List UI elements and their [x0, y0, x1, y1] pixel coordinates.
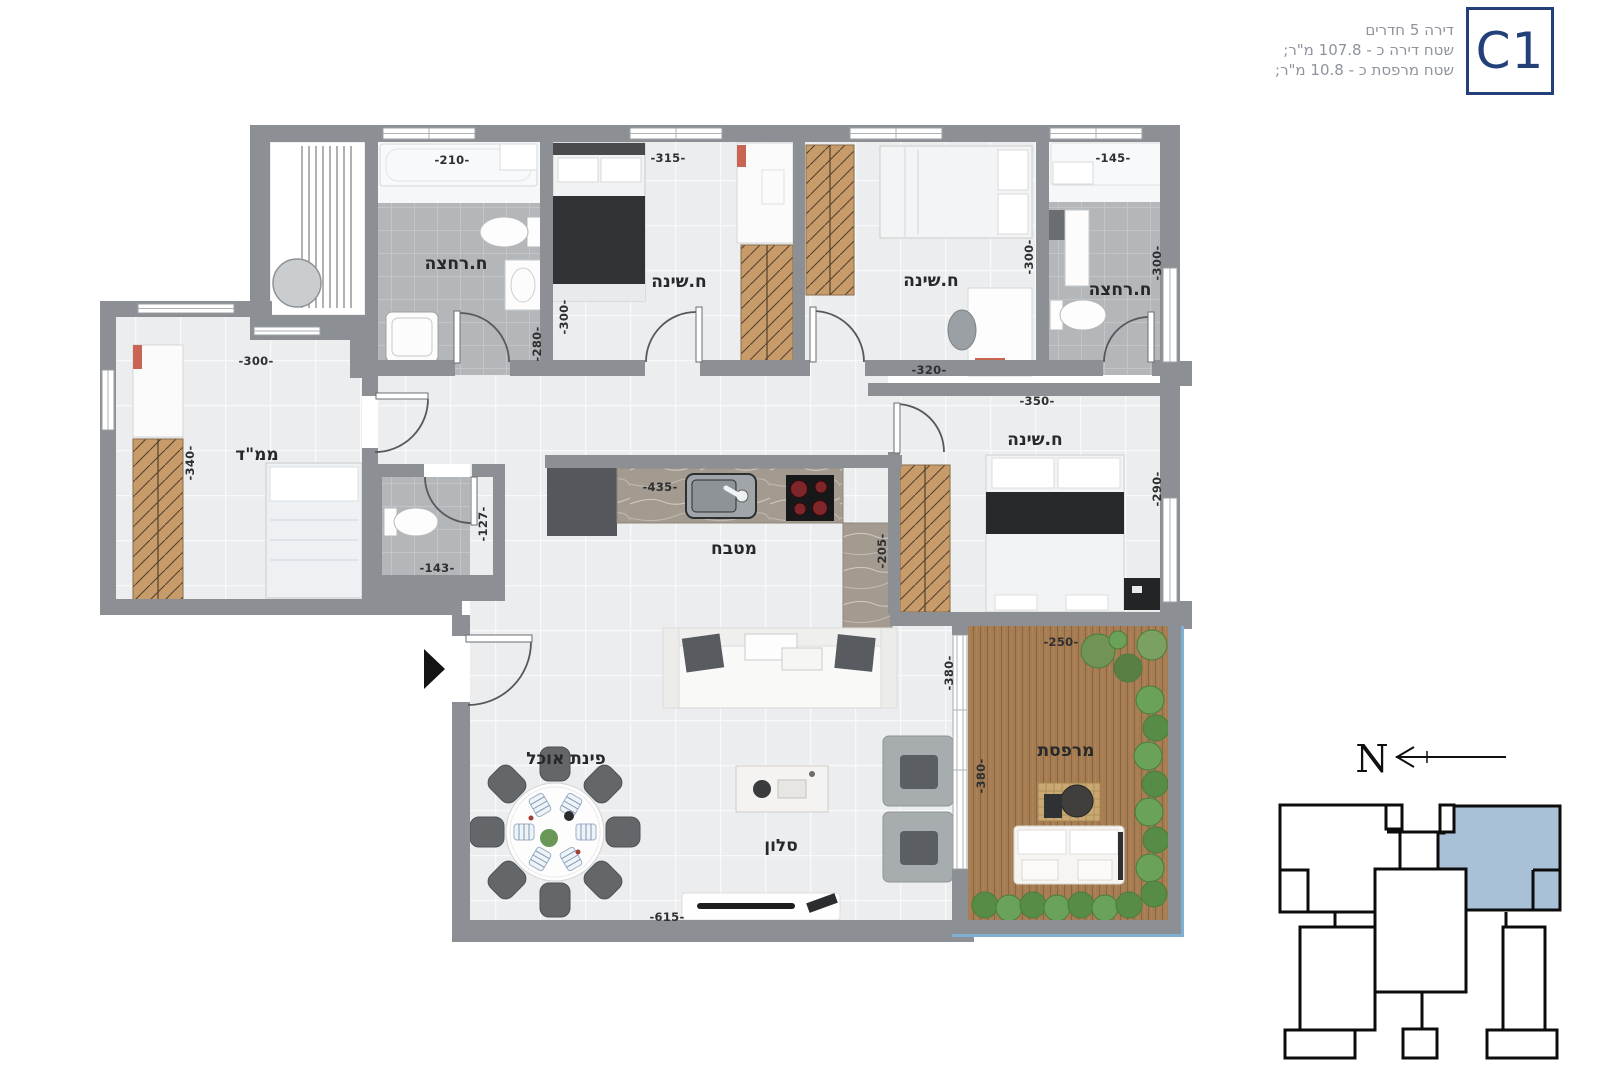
master-closet-icon — [900, 465, 950, 612]
dim-wc-bottom: -143- — [419, 561, 454, 575]
dim-balcony-top: -250- — [1043, 635, 1078, 649]
room-label-mamad: ממ"ד — [235, 445, 278, 465]
dim-mamad-top: -300- — [238, 354, 273, 368]
apartment-area-line: שטח דירה כ - 107.8 מ"ר; — [1275, 40, 1454, 60]
key-plan — [1280, 805, 1560, 1058]
nightstand-icon — [1124, 578, 1164, 610]
coffee-table-icon — [736, 766, 828, 812]
balcony-area-line: שטח מרפסת כ - 10.8 מ"ר; — [1275, 60, 1454, 80]
window-icon — [254, 327, 320, 335]
dim-balcony-side: -380- — [974, 758, 988, 793]
room-label-living: סלון — [764, 836, 798, 856]
toilet-icon — [1060, 300, 1106, 330]
window-icon — [1163, 498, 1177, 602]
dim-bath2-top: -145- — [1095, 151, 1130, 165]
fridge-icon — [547, 468, 617, 536]
sink-icon — [1065, 210, 1089, 286]
master-bed-icon — [986, 455, 1124, 612]
cabinet-icon — [1049, 210, 1065, 240]
dim-bed2-left-lower: -280- — [530, 326, 544, 361]
room-label-bed2: ח.שינה — [651, 272, 706, 292]
dim-bed3-bottom: -320- — [911, 363, 946, 377]
dim-bed2-top: -315- — [650, 151, 685, 165]
dining-set-icon — [470, 747, 640, 917]
dim-living-bottom: -615- — [649, 910, 684, 924]
menu-card-icon — [1044, 794, 1062, 818]
apartment-type-line: דירה 5 חדרים — [1275, 20, 1454, 40]
tv-console-icon — [682, 893, 840, 920]
floor-plan-drawing: ח.רחצה ח.שינה ח.שינה ח.רחצה ממ"ד מטבח ח.… — [0, 0, 1600, 1067]
window-icon — [850, 128, 942, 139]
dim-bath1-top: -210- — [434, 153, 469, 167]
boiler-icon — [273, 259, 321, 307]
dim-mamad-left: -340- — [183, 445, 197, 480]
room-label-kitchen: מטבח — [711, 539, 757, 559]
cooktop-icon — [786, 475, 834, 521]
window-icon — [102, 370, 114, 430]
dim-bath2-right: -300- — [1150, 245, 1164, 280]
room-label-balcony: מרפסת — [1038, 741, 1095, 761]
bed2-closets-icon — [737, 143, 793, 375]
entrance-arrow-icon — [424, 649, 445, 689]
room-label-bed3: ח.שינה — [903, 271, 958, 291]
title-block: דירה 5 חדרים שטח דירה כ - 107.8 מ"ר; שטח… — [1275, 20, 1454, 80]
dim-bed2-left-upper: -300- — [557, 299, 571, 334]
corridor-floor — [378, 375, 888, 464]
dim-wc-right: -127- — [476, 506, 490, 541]
armchair-icon — [883, 812, 953, 882]
room-label-master: ח.שינה — [1007, 430, 1062, 450]
dim-master-top: -350- — [1019, 394, 1054, 408]
mamad-bed-icon — [266, 463, 362, 598]
tray-icon — [1061, 785, 1093, 817]
floor-plan-page: ח.רחצה ח.שינה ח.שינה ח.רחצה ממ"ד מטבח ח.… — [0, 0, 1600, 1067]
dim-kitchen-side: -205- — [875, 533, 889, 568]
sofa-icon — [663, 628, 897, 708]
window-icon — [383, 128, 475, 139]
window-icon — [1163, 268, 1177, 362]
dim-master-right: -290- — [1150, 471, 1164, 506]
toilet-icon — [480, 217, 528, 247]
room-label-bath2: ח.רחצה — [1089, 280, 1152, 300]
wc-toilet-icon — [384, 508, 438, 536]
bed2-bed-icon — [553, 143, 645, 301]
shelf-icon — [500, 144, 537, 170]
unit-code-badge: C1 — [1466, 7, 1554, 95]
dim-kitchen-top: -435- — [642, 480, 677, 494]
room-label-dining: פינת אוכל — [526, 749, 606, 769]
dim-bed3-right: -300- — [1022, 239, 1036, 274]
window-icon — [1050, 128, 1142, 139]
dim-living-balcony: -380- — [942, 655, 956, 690]
armchair-icon — [883, 736, 953, 806]
window-icon — [630, 128, 722, 139]
chair-icon — [948, 310, 976, 350]
bed3-bed-icon — [880, 146, 1032, 238]
mamad-closets-icon — [133, 345, 183, 603]
unit-code: C1 — [1476, 22, 1545, 80]
bed3-closet-icon — [806, 145, 854, 295]
north-label: N — [1355, 737, 1388, 781]
room-label-bath1: ח.רחצה — [425, 254, 488, 274]
window-icon — [138, 304, 234, 313]
north-arrow: N — [1355, 737, 1506, 781]
